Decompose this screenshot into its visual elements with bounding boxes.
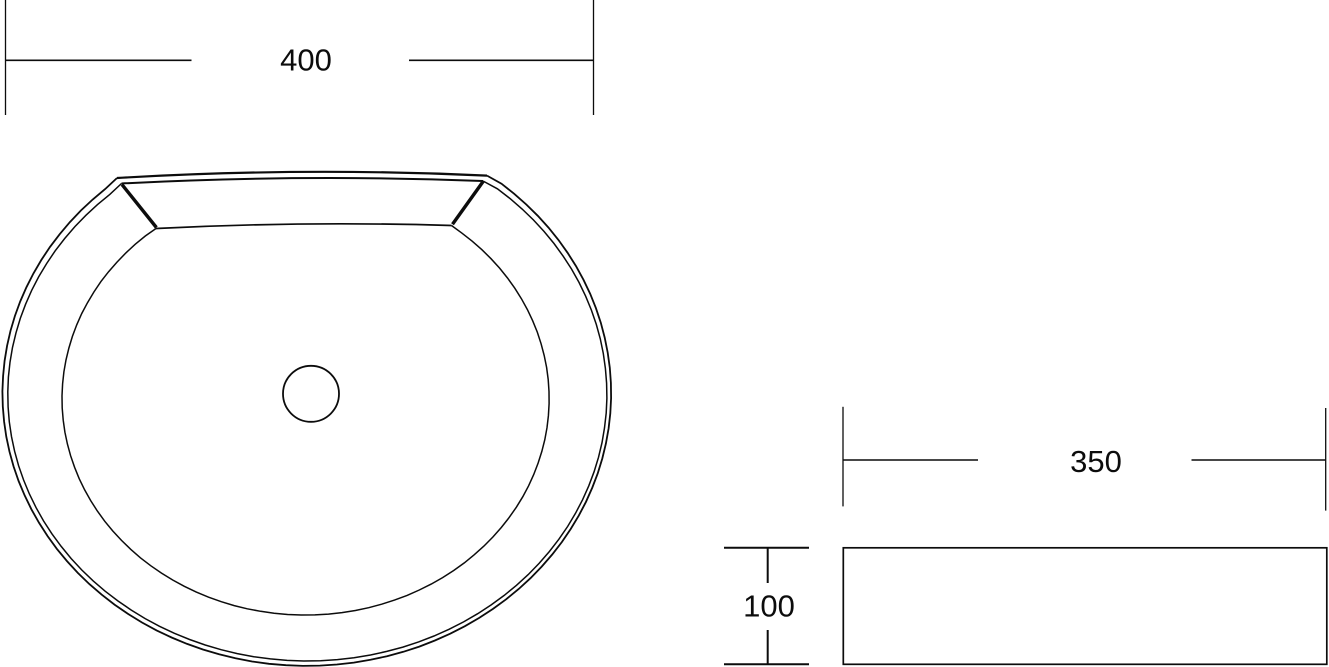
svg-text:100: 100 (743, 589, 795, 624)
svg-text:400: 400 (280, 43, 332, 78)
svg-text:350: 350 (1070, 444, 1122, 479)
